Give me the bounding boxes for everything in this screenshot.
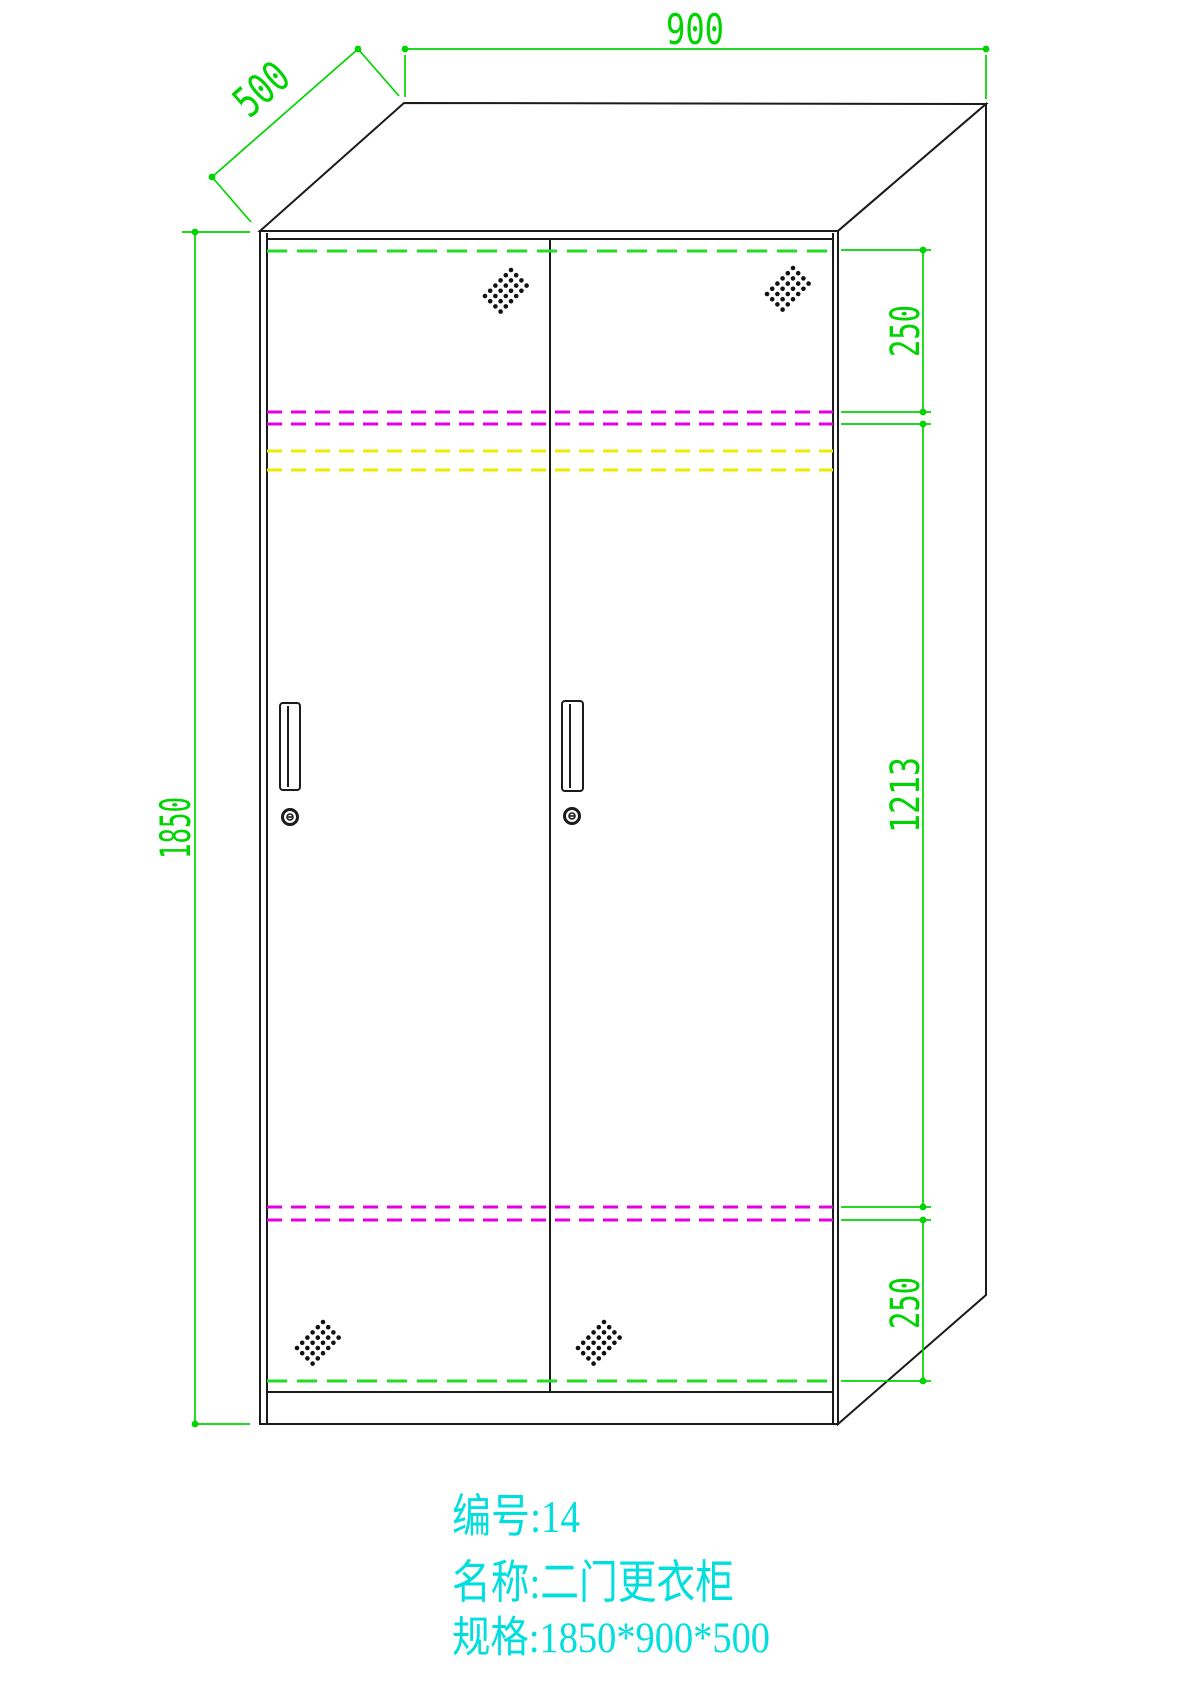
dimension-endpoint-dot <box>920 1217 927 1224</box>
product-spec-label: 规格:1850*900*500 <box>452 1615 770 1662</box>
dim-label-height: 1850 <box>151 797 200 859</box>
dimension-endpoint-dot <box>402 46 409 53</box>
dim-extension <box>212 177 251 222</box>
dim-line <box>212 49 358 177</box>
cabinet-technical-drawing: 900 500 1850 250 1213 250 编号:14 名称:二门更衣柜… <box>0 0 1200 1699</box>
dimension-endpoint-dot <box>920 421 927 428</box>
dimension-endpoint-dot <box>192 229 199 236</box>
info-text-block: 编号:14 名称:二门更衣柜 规格:1850*900*500 <box>452 1491 770 1662</box>
dimension-endpoint-dot <box>920 1204 927 1211</box>
dim-extension <box>358 49 399 96</box>
dimension-width-900 <box>405 49 986 99</box>
dimension-endpoint-dot <box>920 409 927 416</box>
dimension-endpoint-dot <box>209 174 216 181</box>
dim-label-right-bottom: 250 <box>883 1277 929 1329</box>
drawing-canvas: 900 500 1850 250 1213 250 编号:14 名称:二门更衣柜… <box>0 0 1200 1699</box>
dimension-endpoint-dot <box>192 1421 199 1428</box>
right-door-handle <box>562 701 583 791</box>
cabinet-outline <box>260 103 986 1424</box>
dimension-endpoint-dot <box>920 247 927 254</box>
product-name-label: 名称:二门更衣柜 <box>452 1557 734 1608</box>
dim-label-width: 900 <box>666 5 724 54</box>
dimension-endpoint-dot <box>983 46 990 53</box>
dimension-endpoint-dot <box>920 1378 927 1385</box>
dim-label-right-top: 250 <box>883 305 929 357</box>
left-door-handle <box>280 703 300 790</box>
dimension-endpoint-dot <box>355 46 362 53</box>
product-number-label: 编号:14 <box>452 1491 580 1542</box>
dim-label-depth: 500 <box>223 52 299 127</box>
dim-label-right-middle: 1213 <box>883 757 929 833</box>
